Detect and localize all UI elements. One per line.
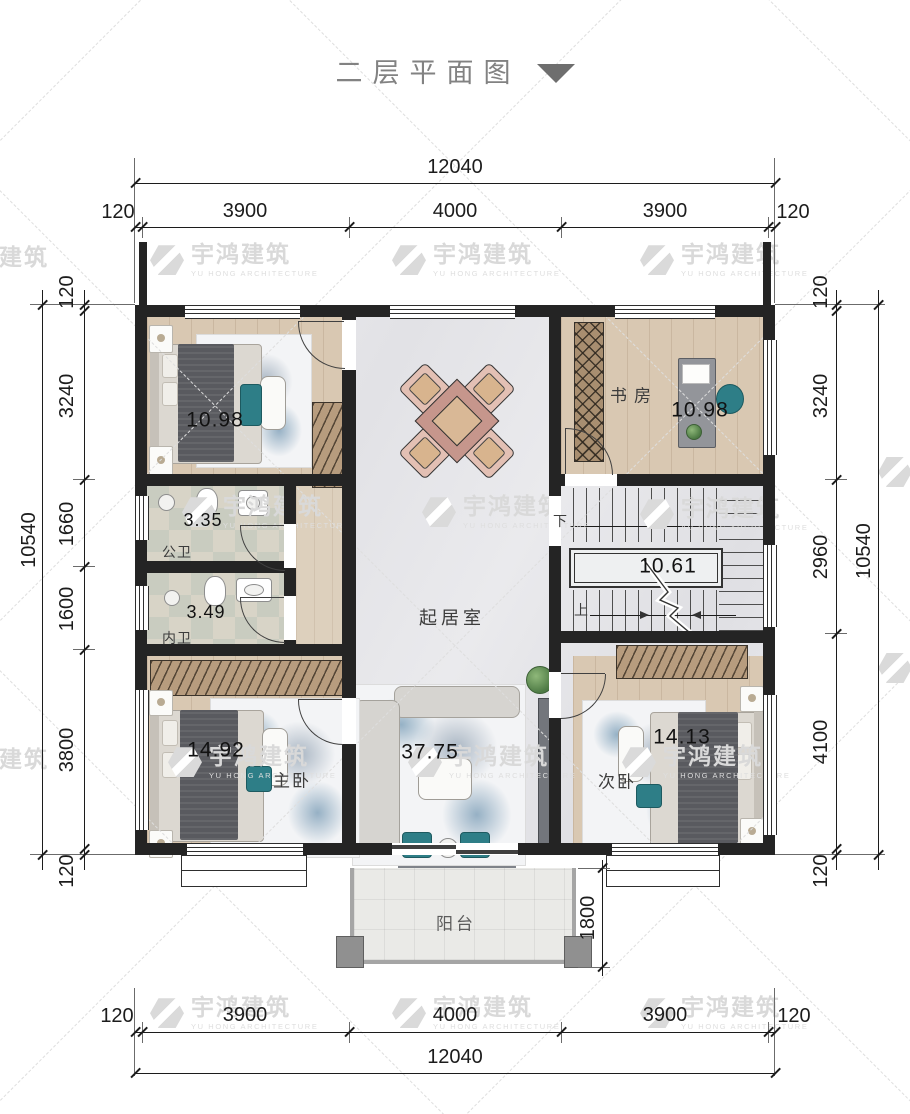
dimension-line	[836, 290, 837, 870]
dim-left-seg: 3800	[57, 728, 77, 773]
extension-line	[578, 967, 610, 968]
window	[390, 305, 515, 319]
dimension-line	[135, 227, 775, 228]
dim-bottom-seg: 4000	[433, 1005, 478, 1025]
stair-direction-line	[570, 526, 720, 527]
watermark-logo-partial: 宇鸿建筑	[0, 243, 49, 273]
door-opening	[549, 672, 561, 718]
room-name-study: 书房	[610, 388, 658, 405]
dim-left-seg: 120	[57, 854, 77, 887]
watermark-brand: 宇鸿建筑	[433, 241, 533, 267]
room-area: 14.92	[187, 740, 245, 761]
room-name-living: 起居室	[419, 609, 485, 627]
lamp-icon	[157, 698, 165, 706]
extension-line	[774, 158, 775, 303]
watermark-logo: 宇鸿建筑YU HONG ARCHITECTURE	[640, 243, 808, 278]
window	[135, 586, 149, 630]
bay-window	[181, 855, 307, 887]
door-leaf	[298, 321, 344, 322]
page-title: 二层平面图	[0, 60, 910, 87]
pillow	[162, 354, 178, 378]
bed-headboard	[150, 344, 159, 462]
wardrobe	[150, 660, 344, 696]
bed-headboard	[150, 710, 159, 840]
window	[135, 690, 149, 830]
dim-balcony-depth: 1800	[578, 896, 598, 941]
stair-down-label: 下	[553, 514, 567, 528]
wall	[549, 305, 561, 855]
watermark-subtitle: YU HONG ARCHITECTURE	[681, 270, 808, 278]
blanket	[178, 344, 234, 462]
tea-table-top	[432, 396, 483, 447]
lamp-icon	[157, 456, 165, 464]
dimension-line	[135, 1032, 775, 1033]
window	[185, 305, 300, 319]
door-leaf	[298, 699, 342, 700]
balcony-column	[564, 936, 592, 968]
stair-winders	[719, 488, 763, 631]
dim-right-seg: 4100	[811, 720, 831, 765]
dim-top-seg: 3900	[643, 201, 688, 221]
bench	[260, 376, 286, 430]
lamp-icon	[157, 334, 165, 342]
dimension-line	[878, 290, 879, 870]
stair-flight-upper	[573, 488, 719, 542]
dim-right-seg: 120	[811, 854, 831, 887]
room-area: 10.98	[671, 400, 729, 421]
nightstand	[149, 446, 173, 476]
lamp-icon	[748, 827, 756, 835]
washer	[238, 490, 268, 516]
dim-bottom-seg: 3900	[643, 1005, 688, 1025]
stair-up-label: 上	[574, 603, 588, 617]
wall	[135, 474, 356, 486]
dim-left-seg: 120	[57, 275, 77, 308]
dim-bottom-seg: 120	[100, 1006, 133, 1026]
wardrobe	[616, 645, 748, 679]
wall	[342, 305, 356, 855]
stair-area: 10.61	[639, 556, 697, 577]
dim-bottom-seg: 120	[777, 1006, 810, 1026]
dimension-line	[84, 290, 85, 870]
window	[763, 340, 777, 455]
watermark-brand: 宇鸿建筑	[681, 994, 781, 1020]
dim-right-seg: 3240	[811, 374, 831, 419]
dim-left-seg: 1600	[57, 587, 77, 632]
dropdown-triangle-icon[interactable]	[537, 64, 575, 83]
dimension-line	[135, 183, 775, 184]
wall-stub	[139, 242, 147, 306]
pillow	[162, 720, 178, 746]
dim-top-seg: 4000	[433, 201, 478, 221]
door-opening	[284, 524, 296, 568]
wall	[549, 631, 775, 643]
sliding-door-leaf	[456, 850, 518, 854]
dim-top-overall: 12040	[427, 157, 483, 177]
desk-plant-icon	[686, 424, 702, 440]
door-leaf	[240, 525, 284, 526]
watermark-logo: 宇鸿建筑YU HONG ARCHITECTURE	[150, 243, 318, 278]
room-area: 14.13	[653, 727, 711, 748]
dim-bottom-seg: 3900	[223, 1005, 268, 1025]
nightstand	[740, 818, 764, 846]
sliding-door-leaf	[392, 845, 456, 849]
dim-right-overall: 10540	[854, 523, 874, 579]
dimension-line	[602, 860, 603, 976]
pillow	[162, 382, 178, 406]
dim-right-seg: 120	[811, 275, 831, 308]
dimension-line	[135, 1073, 775, 1074]
dim-top-seg: 3900	[223, 201, 268, 221]
room-area: 3.35	[183, 511, 222, 529]
pillow	[736, 722, 752, 748]
watermark-subtitle: YU HONG ARCHITECTURE	[191, 270, 318, 278]
window	[763, 545, 777, 627]
pillow	[162, 752, 178, 778]
watermark-subtitle: YU HONG ARCHITECTURE	[433, 270, 560, 278]
room-area: 3.49	[186, 603, 225, 621]
balcony-column	[336, 936, 364, 968]
door-leaf	[240, 597, 284, 598]
bay-window	[606, 855, 720, 887]
accent-chair	[246, 766, 272, 792]
watermark-logo: 宇鸿建筑YU HONG ARCHITECTURE	[392, 243, 560, 278]
hexagon-logo-icon	[150, 998, 184, 1028]
dim-top-seg: 120	[776, 202, 809, 222]
dim-right-seg: 2960	[811, 535, 831, 580]
door-opening	[284, 596, 296, 640]
dim-left-seg: 1660	[57, 502, 77, 547]
sofa-chaise	[354, 700, 400, 854]
window	[135, 496, 149, 540]
extension-line	[578, 868, 610, 869]
hexagon-logo-icon	[150, 245, 184, 275]
room-name-bath-ensuite: 内卫	[162, 631, 192, 645]
dimension-line	[42, 290, 43, 870]
accent-chair	[636, 784, 662, 808]
dim-bottom-overall: 12040	[427, 1047, 483, 1067]
shower-icon	[164, 590, 180, 606]
door-leaf	[561, 673, 605, 674]
door-opening	[565, 474, 617, 486]
dim-left-seg: 3240	[57, 374, 77, 419]
shower-icon	[158, 494, 175, 511]
door-leaf	[565, 428, 566, 474]
nightstand	[149, 325, 173, 353]
room-name-second: 次卧	[598, 774, 636, 791]
door-opening	[342, 698, 356, 744]
sofa-back	[394, 686, 520, 718]
room-name-bath-public: 公卫	[162, 545, 192, 559]
sink-basin-icon	[244, 584, 264, 596]
nightstand	[149, 690, 173, 716]
watermark-brand: 宇鸿建筑	[0, 244, 49, 270]
desk-paper	[682, 364, 710, 384]
dim-top-seg: 120	[101, 202, 134, 222]
room-name-master: 主卧	[273, 773, 311, 790]
pillow	[736, 754, 752, 780]
hexagon-logo-icon	[392, 245, 426, 275]
hexagon-logo-icon	[878, 653, 910, 683]
corridor-floor	[296, 486, 342, 644]
coffee-table	[418, 758, 472, 800]
dim-left-overall: 10540	[19, 512, 39, 568]
watermark-logo-partial	[878, 653, 910, 683]
page-title-text: 二层平面图	[336, 60, 521, 87]
nightstand	[740, 686, 764, 712]
hexagon-logo-icon	[640, 245, 674, 275]
room-area: 10.98	[186, 410, 244, 431]
window	[615, 305, 715, 319]
wall-stub	[763, 242, 771, 306]
washer-drum-icon	[246, 496, 260, 510]
hexagon-logo-icon	[392, 998, 426, 1028]
floor-plan-page: 二层平面图 宇鸿建筑YU HONG ARCHITECTURE 宇鸿建筑YU HO…	[0, 0, 910, 1114]
room-area: 37.75	[401, 742, 459, 763]
room-name-balcony: 阳台	[436, 916, 476, 933]
window	[763, 695, 777, 835]
blanket	[180, 710, 238, 840]
watermark-brand: 宇鸿建筑	[191, 241, 291, 267]
hexagon-logo-icon	[878, 457, 910, 487]
extension-line	[134, 158, 135, 303]
watermark-logo-partial	[878, 457, 910, 487]
lamp-icon	[748, 694, 756, 702]
